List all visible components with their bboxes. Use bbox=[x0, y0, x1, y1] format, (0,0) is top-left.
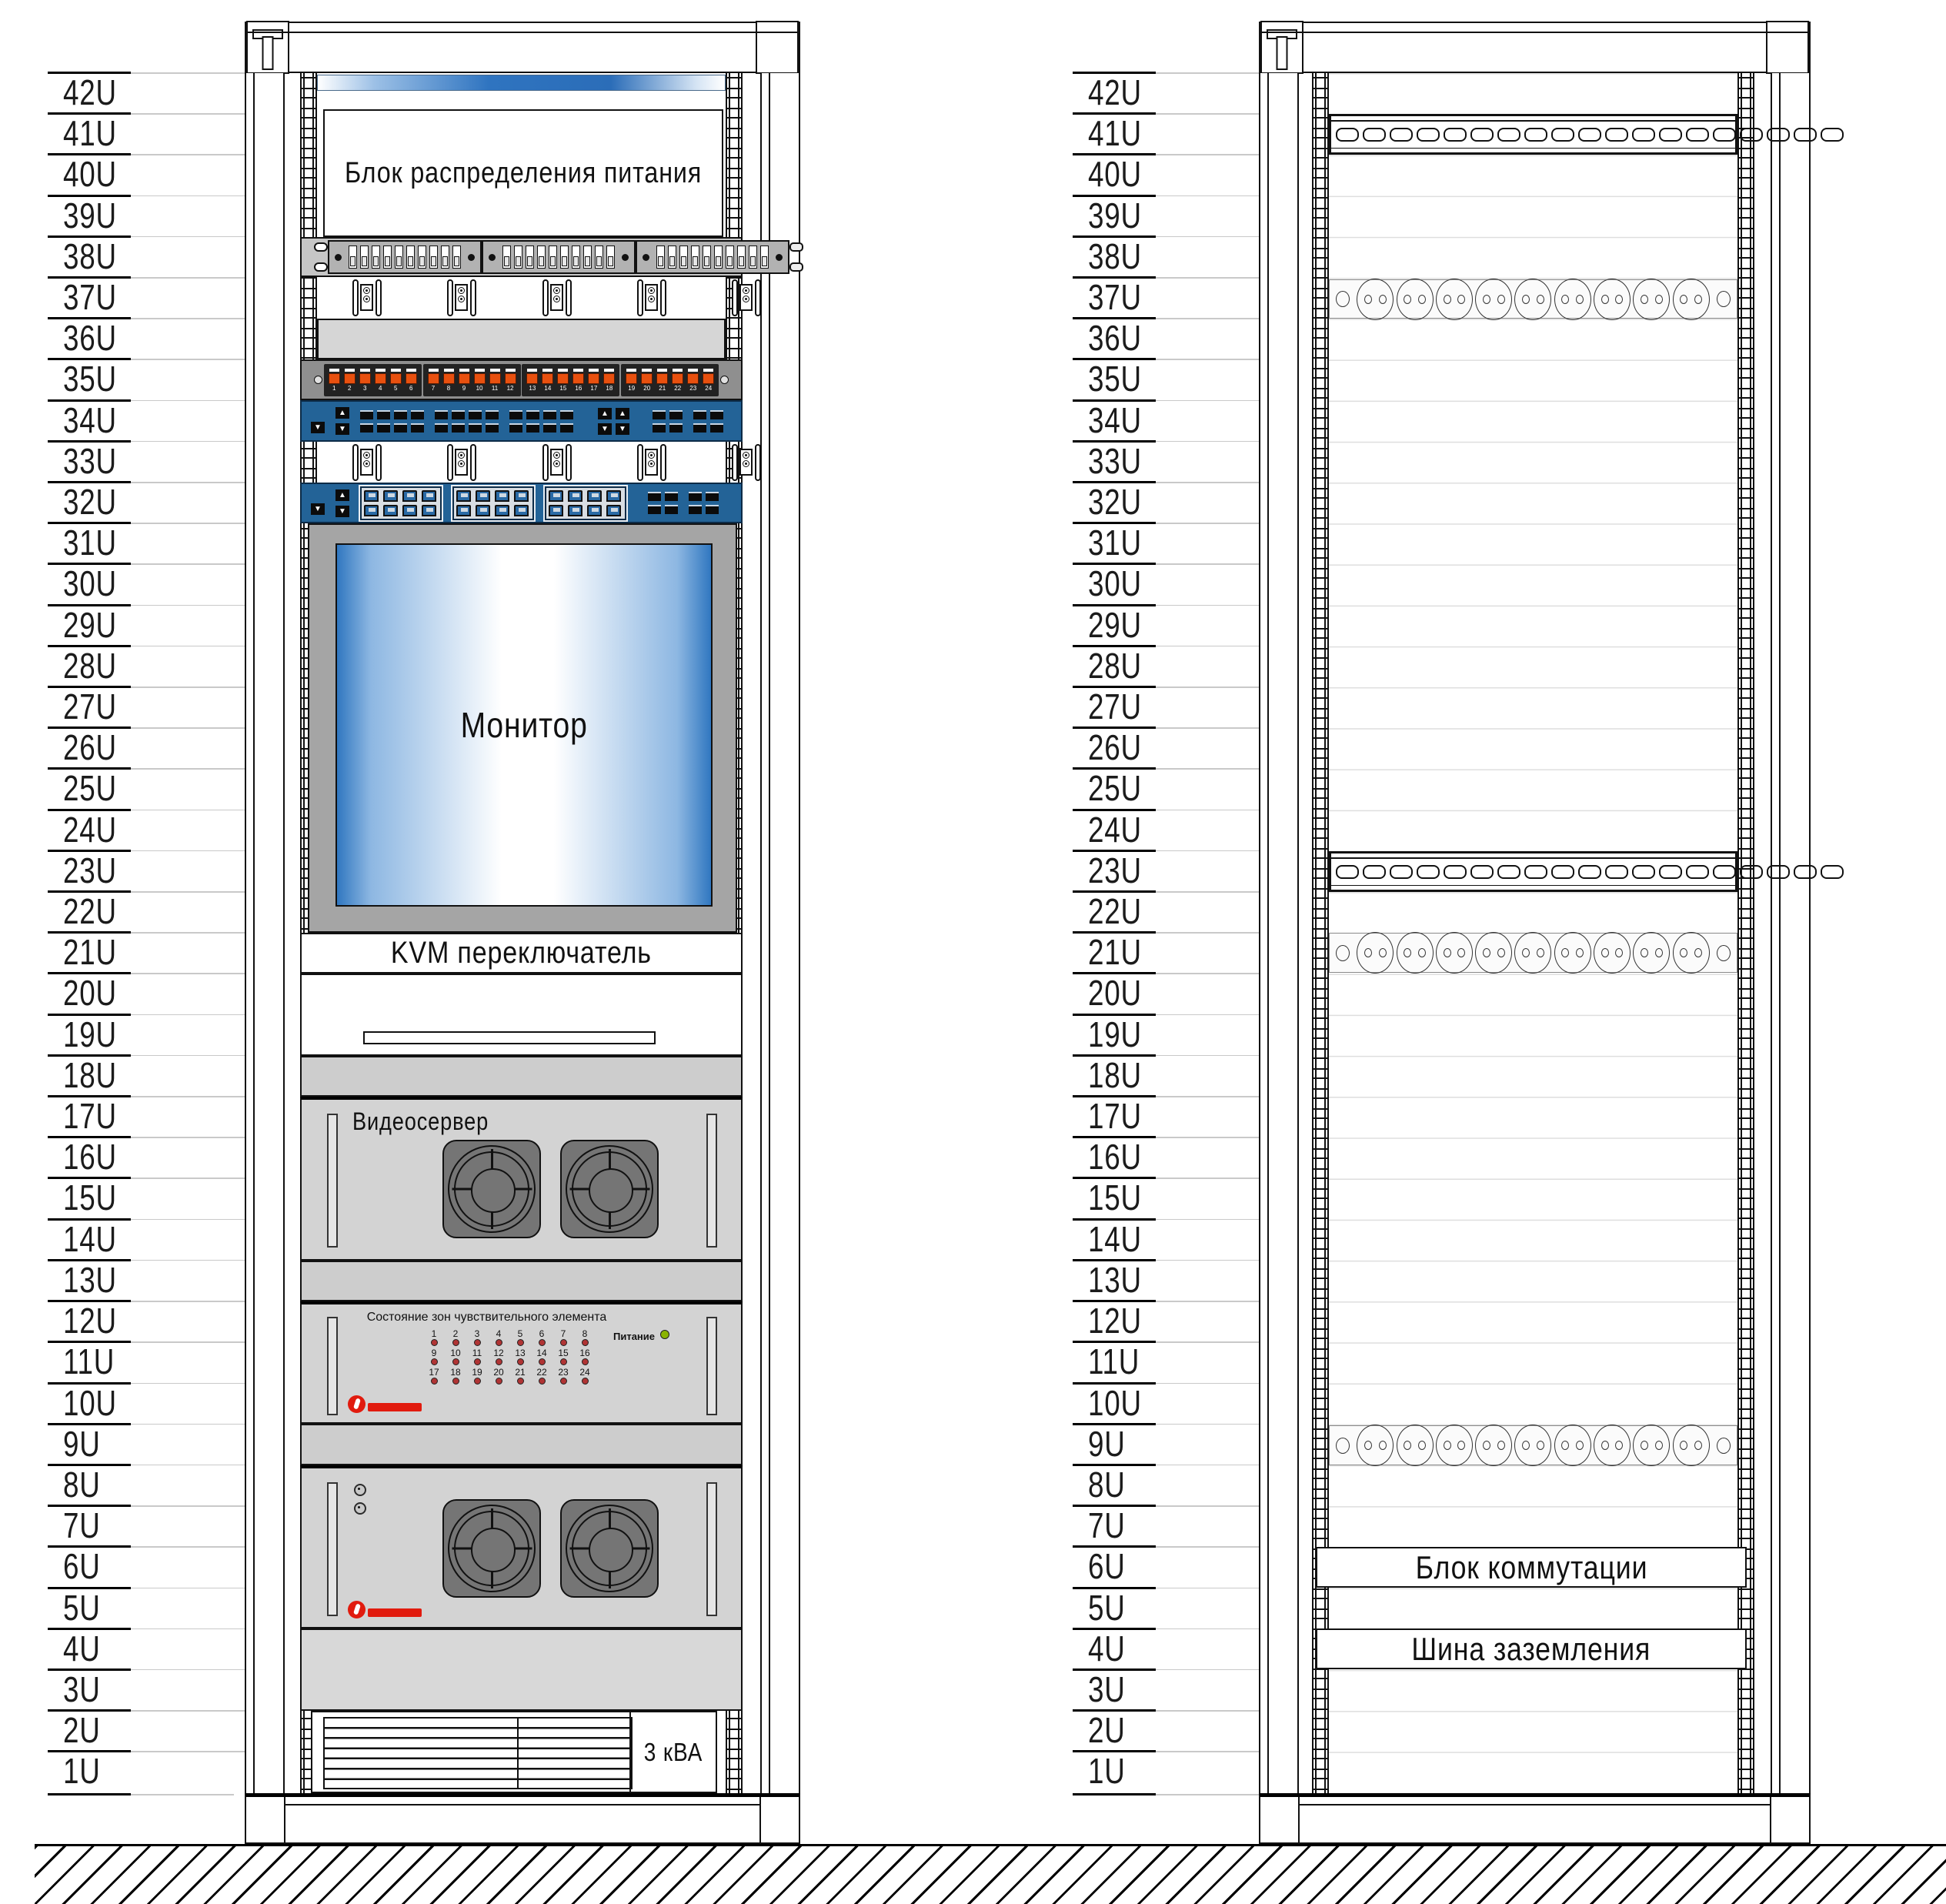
power-strip bbox=[1329, 1425, 1737, 1465]
u-label-row: 24U bbox=[48, 810, 246, 851]
breaker-switch[interactable] bbox=[418, 246, 426, 269]
power-socket-icon[interactable] bbox=[1673, 1425, 1710, 1466]
rj45-port[interactable] bbox=[514, 490, 529, 502]
duct-slot bbox=[1551, 128, 1574, 142]
zone-indicator: 11 bbox=[466, 1348, 488, 1368]
zone-led-icon bbox=[452, 1339, 459, 1346]
right-rack-top-left-corner bbox=[1260, 21, 1303, 74]
u-label-row: 4U bbox=[1073, 1629, 1259, 1670]
rack-handle[interactable] bbox=[327, 1317, 338, 1415]
zone-led-icon bbox=[452, 1358, 459, 1365]
monitor: Монитор bbox=[308, 523, 737, 933]
cable-duct bbox=[1329, 851, 1737, 892]
rj45-port[interactable] bbox=[422, 505, 436, 516]
duct-slot bbox=[1605, 128, 1628, 142]
switch-port[interactable] bbox=[435, 410, 448, 419]
strip-mount-hole bbox=[1717, 945, 1731, 961]
duct-slot bbox=[1794, 128, 1817, 142]
patch-port[interactable]: 23 bbox=[687, 369, 699, 392]
patch-port-group: 192021222324 bbox=[621, 364, 719, 396]
switch-port[interactable] bbox=[560, 423, 573, 433]
u-label-row: 21U bbox=[1073, 933, 1259, 974]
switch-port[interactable] bbox=[377, 410, 390, 419]
patch-port[interactable]: 19 bbox=[626, 369, 637, 392]
patch-port[interactable]: 11 bbox=[489, 369, 501, 392]
u-label-row: 31U bbox=[1073, 523, 1259, 564]
duct-slot bbox=[1740, 128, 1763, 142]
switch-port[interactable] bbox=[526, 423, 539, 433]
u-label-row: 22U bbox=[48, 892, 246, 933]
right-u-scale: 42U41U40U39U38U37U36U35U34U33U32U31U30U2… bbox=[1073, 73, 1259, 1795]
zone-indicator: 19 bbox=[466, 1368, 488, 1387]
breaker-switch[interactable] bbox=[372, 246, 380, 269]
rj45-port[interactable] bbox=[549, 505, 563, 516]
rack-handle[interactable] bbox=[706, 1317, 717, 1415]
u-label-row: 27U bbox=[1073, 687, 1259, 728]
top-cover-strip bbox=[317, 75, 726, 91]
switch-port[interactable] bbox=[560, 410, 573, 419]
u-label-row: 1U bbox=[1073, 1752, 1259, 1792]
duct-slot bbox=[1444, 865, 1467, 879]
rj45-port[interactable] bbox=[456, 490, 471, 502]
switch-port[interactable] bbox=[360, 423, 373, 433]
duct-slot bbox=[1336, 128, 1359, 142]
patch-port[interactable]: 15 bbox=[557, 369, 569, 392]
cable-duct bbox=[1329, 114, 1737, 155]
indicator-dot bbox=[776, 254, 783, 261]
u-label-row: 18U bbox=[48, 1056, 246, 1097]
switch-port[interactable] bbox=[469, 410, 482, 419]
switch-port[interactable] bbox=[435, 423, 448, 433]
switch-port[interactable] bbox=[411, 423, 424, 433]
zone-led-icon bbox=[431, 1378, 438, 1385]
strip-mount-hole bbox=[1336, 291, 1350, 307]
power-socket-icon[interactable] bbox=[1475, 279, 1512, 320]
duct-slot bbox=[1821, 128, 1844, 142]
breaker-switch[interactable] bbox=[502, 246, 511, 269]
power-socket-icon[interactable] bbox=[1594, 279, 1631, 320]
u-label-row: 3U bbox=[48, 1670, 246, 1711]
breaker-switch[interactable] bbox=[441, 246, 449, 269]
right-rack-top-right-corner bbox=[1766, 21, 1809, 74]
switch-port[interactable] bbox=[486, 423, 499, 433]
uplink-port-cluster bbox=[648, 492, 678, 514]
patch-port-group: 123456 bbox=[324, 364, 422, 396]
rj45-port[interactable] bbox=[568, 505, 582, 516]
t-screw-icon bbox=[1267, 29, 1297, 39]
rj45-port[interactable] bbox=[587, 505, 602, 516]
patch-port[interactable]: 6 bbox=[406, 369, 417, 392]
breaker-switch[interactable] bbox=[572, 246, 580, 269]
u-label-row: 9U bbox=[1073, 1425, 1259, 1465]
u-label-row: 7U bbox=[48, 1506, 246, 1547]
cable-hook-icon bbox=[542, 444, 572, 481]
power-strip bbox=[1329, 279, 1737, 319]
rj45-port[interactable] bbox=[495, 505, 509, 516]
zone-led-grid: 123456789101112131415161718192021222324 bbox=[423, 1329, 596, 1387]
grounding-bus: Шина заземления bbox=[1316, 1628, 1747, 1669]
arrow-down-button[interactable]: ▼ bbox=[311, 422, 325, 433]
zone-led-icon bbox=[517, 1378, 524, 1385]
rj45-port[interactable] bbox=[402, 505, 417, 516]
breaker-switch[interactable] bbox=[560, 246, 569, 269]
rj45-port[interactable] bbox=[456, 505, 471, 516]
breaker-switch[interactable] bbox=[383, 246, 392, 269]
u-label-row: 39U bbox=[48, 196, 246, 237]
u-label-row: 26U bbox=[48, 728, 246, 769]
rj45-port[interactable] bbox=[383, 490, 398, 502]
switch-port[interactable] bbox=[543, 423, 556, 433]
ups-rating-label: 3 кВА bbox=[643, 1738, 702, 1767]
breaker-switch[interactable] bbox=[714, 246, 723, 269]
breaker-switch[interactable] bbox=[429, 246, 438, 269]
rj45-port[interactable] bbox=[549, 490, 563, 502]
power-socket-icon[interactable] bbox=[1514, 1425, 1551, 1466]
u-label-row: 38U bbox=[48, 237, 246, 278]
u-label-row: 42U bbox=[48, 73, 246, 114]
power-socket-icon[interactable] bbox=[1554, 932, 1591, 974]
rj45-port[interactable] bbox=[402, 490, 417, 502]
rack-handle[interactable] bbox=[706, 1482, 717, 1616]
power-socket-icon[interactable] bbox=[1436, 932, 1473, 974]
patch-port[interactable]: 7 bbox=[428, 369, 439, 392]
arrow-up-button[interactable]: ▲ bbox=[335, 407, 349, 419]
patch-port[interactable]: 8 bbox=[443, 369, 455, 392]
zone-led-icon bbox=[474, 1378, 481, 1385]
patch-port[interactable]: 24 bbox=[703, 369, 714, 392]
arrow-down-button[interactable]: ▼ bbox=[335, 423, 349, 435]
patch-port[interactable]: 13 bbox=[526, 369, 538, 392]
breaker-switch[interactable] bbox=[606, 246, 615, 269]
u-label-row: 24U bbox=[1073, 810, 1259, 851]
u-scale-baseline bbox=[1073, 1793, 1156, 1795]
zone-indicator: 10 bbox=[445, 1348, 466, 1368]
switch-port-group bbox=[435, 410, 499, 433]
right-rack-left-upright bbox=[1259, 73, 1299, 1793]
cable-hook-icon bbox=[352, 444, 382, 481]
patch-panel: 123456 789101112 131415161718 1920212223… bbox=[300, 359, 743, 400]
zone-indicator: 21 bbox=[509, 1368, 531, 1387]
rj45-port[interactable] bbox=[364, 490, 379, 502]
zone-led-icon bbox=[560, 1358, 567, 1365]
zone-led-icon bbox=[496, 1378, 502, 1385]
zone-led-icon bbox=[517, 1339, 524, 1346]
u-label-row: 41U bbox=[1073, 114, 1259, 155]
duct-slot bbox=[1767, 128, 1790, 142]
switch-port[interactable] bbox=[411, 410, 424, 419]
zone-led-icon bbox=[582, 1339, 589, 1346]
switch-port-group bbox=[509, 410, 573, 433]
rj45-port[interactable] bbox=[568, 490, 582, 502]
keyboard-tray[interactable] bbox=[363, 1031, 656, 1044]
rj45-port[interactable] bbox=[364, 505, 379, 516]
kvm-switch: KVM переключатель bbox=[300, 933, 743, 974]
u-label-row: 1U bbox=[48, 1752, 246, 1792]
arrow-up-button[interactable]: ▲ bbox=[598, 408, 612, 419]
zone-led-icon bbox=[431, 1339, 438, 1346]
breaker-switch[interactable] bbox=[406, 246, 415, 269]
breaker-switch[interactable] bbox=[360, 246, 369, 269]
rack-handle[interactable] bbox=[327, 1114, 338, 1248]
rj45-port-group bbox=[452, 486, 534, 520]
right-rack-top-frame bbox=[1259, 22, 1811, 73]
zone-indicator: 17 bbox=[423, 1368, 445, 1387]
left-rack-top-left-corner bbox=[246, 21, 289, 74]
network-switch-a: ▼ ▲▼ ▲▲ ▼▼ bbox=[300, 400, 743, 442]
patch-port[interactable]: 5 bbox=[390, 369, 402, 392]
patch-port[interactable]: 3 bbox=[359, 369, 371, 392]
power-distribution-panel: Блок распределения питания bbox=[323, 109, 723, 237]
u-label-row: 28U bbox=[1073, 646, 1259, 687]
switch-port[interactable] bbox=[509, 410, 522, 419]
fan-icon bbox=[442, 1140, 541, 1238]
power-distribution-label: Блок распределения питания bbox=[345, 157, 702, 190]
rj45-port[interactable] bbox=[606, 505, 621, 516]
u-label-row: 2U bbox=[1073, 1711, 1259, 1752]
breaker-switch[interactable] bbox=[726, 246, 734, 269]
indicator-dot bbox=[335, 254, 342, 261]
breaker-switch[interactable] bbox=[595, 246, 603, 269]
rack-handle[interactable] bbox=[706, 1114, 717, 1248]
patch-port[interactable]: 17 bbox=[588, 369, 599, 392]
patch-port[interactable]: 22 bbox=[672, 369, 683, 392]
left-rack-left-upright bbox=[245, 73, 285, 1793]
left-rack-top-right-corner bbox=[756, 21, 799, 74]
zone-led-icon bbox=[582, 1378, 589, 1385]
power-socket-icon[interactable] bbox=[1475, 932, 1512, 974]
blank-panel-13u bbox=[300, 1261, 743, 1301]
strip-mount-hole bbox=[1717, 1438, 1731, 1454]
u-label-row: 32U bbox=[1073, 483, 1259, 523]
patch-port[interactable]: 10 bbox=[474, 369, 486, 392]
arrow-down-button[interactable]: ▼ bbox=[598, 423, 612, 435]
u-label-row: 18U bbox=[1073, 1056, 1259, 1097]
keyboard-shelf bbox=[300, 974, 743, 1056]
patch-port[interactable]: 18 bbox=[603, 369, 615, 392]
blank-panel-18u bbox=[300, 1056, 743, 1097]
switch-port[interactable] bbox=[452, 410, 465, 419]
cable-hook-icon bbox=[447, 444, 476, 481]
breaker-switch[interactable] bbox=[549, 246, 557, 269]
zone-indicator: 7 bbox=[552, 1329, 574, 1348]
breaker-switch[interactable] bbox=[760, 246, 769, 269]
patch-port[interactable]: 14 bbox=[542, 369, 553, 392]
power-socket-icon[interactable] bbox=[1475, 1425, 1512, 1466]
switch-port[interactable] bbox=[509, 423, 522, 433]
right-rack-plinth bbox=[1259, 1793, 1811, 1844]
rj45-port[interactable] bbox=[514, 505, 529, 516]
zone-indicator: 24 bbox=[574, 1368, 596, 1387]
power-socket-icon[interactable] bbox=[1554, 1425, 1591, 1466]
power-socket-icon[interactable] bbox=[1357, 1425, 1394, 1466]
breaker-switch[interactable] bbox=[703, 246, 711, 269]
breaker-switch[interactable] bbox=[526, 246, 534, 269]
patch-port[interactable]: 9 bbox=[459, 369, 470, 392]
breaker-switch[interactable] bbox=[395, 246, 403, 269]
u-label-row: 11U bbox=[48, 1342, 246, 1383]
breaker-switch[interactable] bbox=[691, 246, 699, 269]
u-label-row: 20U bbox=[48, 974, 246, 1014]
power-socket-icon[interactable] bbox=[1397, 932, 1434, 974]
switch-port[interactable] bbox=[526, 410, 539, 419]
rj45-port[interactable] bbox=[587, 490, 602, 502]
right-rack-left-mounting-rail bbox=[1312, 73, 1329, 1793]
power-socket-icon[interactable] bbox=[1514, 279, 1551, 320]
duct-slot bbox=[1551, 865, 1574, 879]
arrow-down-button[interactable]: ▼ bbox=[311, 503, 325, 515]
zone-indicator: 6 bbox=[531, 1329, 552, 1348]
switch-port[interactable] bbox=[360, 410, 373, 419]
power-socket-icon[interactable] bbox=[1633, 279, 1670, 320]
power-socket-icon[interactable] bbox=[1594, 1425, 1631, 1466]
power-socket-icon[interactable] bbox=[1357, 932, 1394, 974]
u-label-row: 2U bbox=[48, 1711, 246, 1752]
patch-port[interactable]: 1 bbox=[329, 369, 340, 392]
rj45-port[interactable] bbox=[422, 490, 436, 502]
zone-indicator: 22 bbox=[531, 1368, 552, 1387]
zone-led-icon bbox=[560, 1378, 567, 1385]
u-label-row: 17U bbox=[48, 1097, 246, 1137]
duct-slot bbox=[1444, 128, 1467, 142]
patch-port-group: 131415161718 bbox=[522, 364, 619, 396]
u-label-row: 13U bbox=[48, 1261, 246, 1301]
zone-indicator: 2 bbox=[445, 1329, 466, 1348]
rj45-port[interactable] bbox=[606, 490, 621, 502]
duct-slot bbox=[1605, 865, 1628, 879]
rj45-port[interactable] bbox=[383, 505, 398, 516]
patch-port[interactable]: 12 bbox=[505, 369, 516, 392]
monitor-label: Монитор bbox=[460, 704, 587, 746]
video-server: Видеосервер bbox=[300, 1097, 743, 1261]
rj45-port[interactable] bbox=[476, 490, 490, 502]
vendor-logo-icon bbox=[348, 1395, 422, 1413]
breaker-panel bbox=[300, 237, 743, 277]
u-label-row: 40U bbox=[48, 155, 246, 195]
blank-panel-36u bbox=[317, 319, 726, 359]
zone-indicator: 5 bbox=[509, 1329, 531, 1348]
arrow-up-button[interactable]: ▲ bbox=[616, 408, 629, 419]
arrow-down-button[interactable]: ▼ bbox=[616, 423, 629, 435]
u-label-row: 34U bbox=[1073, 401, 1259, 442]
breaker-switch[interactable] bbox=[583, 246, 592, 269]
zone-led-icon bbox=[496, 1339, 502, 1346]
strip-mount-hole bbox=[1717, 291, 1731, 307]
panel-mount-holes bbox=[789, 242, 803, 272]
arrow-up-button[interactable]: ▲ bbox=[335, 489, 349, 501]
power-socket-icon[interactable] bbox=[1633, 932, 1670, 974]
duct-slot bbox=[1794, 865, 1817, 879]
switch-port[interactable] bbox=[377, 423, 390, 433]
u-label-row: 5U bbox=[48, 1588, 246, 1629]
ups-vent-grille bbox=[323, 1717, 520, 1789]
rj45-port[interactable] bbox=[476, 505, 490, 516]
u-label-row: 14U bbox=[1073, 1220, 1259, 1261]
uplink-port-cluster bbox=[693, 410, 723, 433]
u-label-row: 19U bbox=[48, 1015, 246, 1056]
patch-port[interactable]: 4 bbox=[375, 369, 386, 392]
breaker-switch[interactable] bbox=[514, 246, 522, 269]
uplink-port-cluster bbox=[653, 410, 683, 433]
u-label-row: 15U bbox=[48, 1178, 246, 1219]
patch-port[interactable]: 2 bbox=[344, 369, 355, 392]
breaker-switch[interactable] bbox=[656, 246, 665, 269]
power-socket-icon[interactable] bbox=[1357, 279, 1394, 320]
cable-hook-icon bbox=[732, 444, 761, 481]
switch-port[interactable] bbox=[452, 423, 465, 433]
ups-vent-grille bbox=[517, 1717, 633, 1789]
power-socket-icon[interactable] bbox=[1554, 279, 1591, 320]
cable-organizer bbox=[317, 278, 796, 318]
patch-port[interactable]: 16 bbox=[572, 369, 584, 392]
t-screw-icon bbox=[252, 29, 283, 39]
indicator-dot bbox=[622, 254, 629, 261]
breaker-switch[interactable] bbox=[668, 246, 676, 269]
power-strip bbox=[1329, 933, 1737, 973]
u-label-row: 31U bbox=[48, 523, 246, 564]
rack-handle[interactable] bbox=[327, 1482, 338, 1616]
u-label-row: 21U bbox=[48, 933, 246, 974]
breaker-switch[interactable] bbox=[679, 246, 688, 269]
power-socket-icon[interactable] bbox=[1397, 279, 1434, 320]
zone-led-icon bbox=[496, 1358, 502, 1365]
switch-port[interactable] bbox=[394, 423, 407, 433]
zone-indicator: 1 bbox=[423, 1329, 445, 1348]
switch-port[interactable] bbox=[469, 423, 482, 433]
cable-hook-icon bbox=[732, 279, 761, 316]
breaker-group bbox=[482, 240, 636, 274]
switch-port[interactable] bbox=[486, 410, 499, 419]
u-label-row: 27U bbox=[48, 687, 246, 728]
duct-slot bbox=[1659, 128, 1682, 142]
duct-slot bbox=[1390, 865, 1413, 879]
u-label-row: 20U bbox=[1073, 974, 1259, 1014]
power-socket-icon[interactable] bbox=[1594, 932, 1631, 974]
duct-slot bbox=[1497, 128, 1520, 142]
u-label-row: 29U bbox=[48, 606, 246, 646]
breaker-switch[interactable] bbox=[537, 246, 546, 269]
breaker-switch[interactable] bbox=[749, 246, 757, 269]
rj45-port[interactable] bbox=[495, 490, 509, 502]
indicator-dot bbox=[643, 254, 649, 261]
patch-port[interactable]: 21 bbox=[656, 369, 668, 392]
breaker-switch[interactable] bbox=[737, 246, 746, 269]
power-socket-icon[interactable] bbox=[1633, 1425, 1670, 1466]
u-label-row: 10U bbox=[1073, 1384, 1259, 1425]
switch-port[interactable] bbox=[543, 410, 556, 419]
switch-port-group bbox=[360, 410, 424, 433]
zone-led-icon bbox=[474, 1339, 481, 1346]
u-label-row: 41U bbox=[48, 114, 246, 155]
u-label-row: 11U bbox=[1073, 1342, 1259, 1383]
arrow-down-button[interactable]: ▼ bbox=[335, 506, 349, 517]
power-socket-icon[interactable] bbox=[1436, 1425, 1473, 1466]
zone-led-icon bbox=[539, 1378, 546, 1385]
power-socket-icon[interactable] bbox=[1673, 932, 1710, 974]
power-socket-icon[interactable] bbox=[1436, 279, 1473, 320]
u-label-row: 6U bbox=[48, 1547, 246, 1588]
server-unit bbox=[300, 1465, 743, 1628]
power-socket-icon[interactable] bbox=[1673, 279, 1710, 320]
power-socket-icon[interactable] bbox=[1397, 1425, 1434, 1466]
power-socket-icon[interactable] bbox=[1514, 932, 1551, 974]
zone-indicator: 9 bbox=[423, 1348, 445, 1368]
grounding-bus-label: Шина заземления bbox=[1412, 1631, 1651, 1668]
breaker-switch[interactable] bbox=[349, 246, 357, 269]
switch-port[interactable] bbox=[394, 410, 407, 419]
breaker-switch[interactable] bbox=[452, 246, 461, 269]
patch-port[interactable]: 20 bbox=[641, 369, 653, 392]
duct-slot bbox=[1497, 865, 1520, 879]
